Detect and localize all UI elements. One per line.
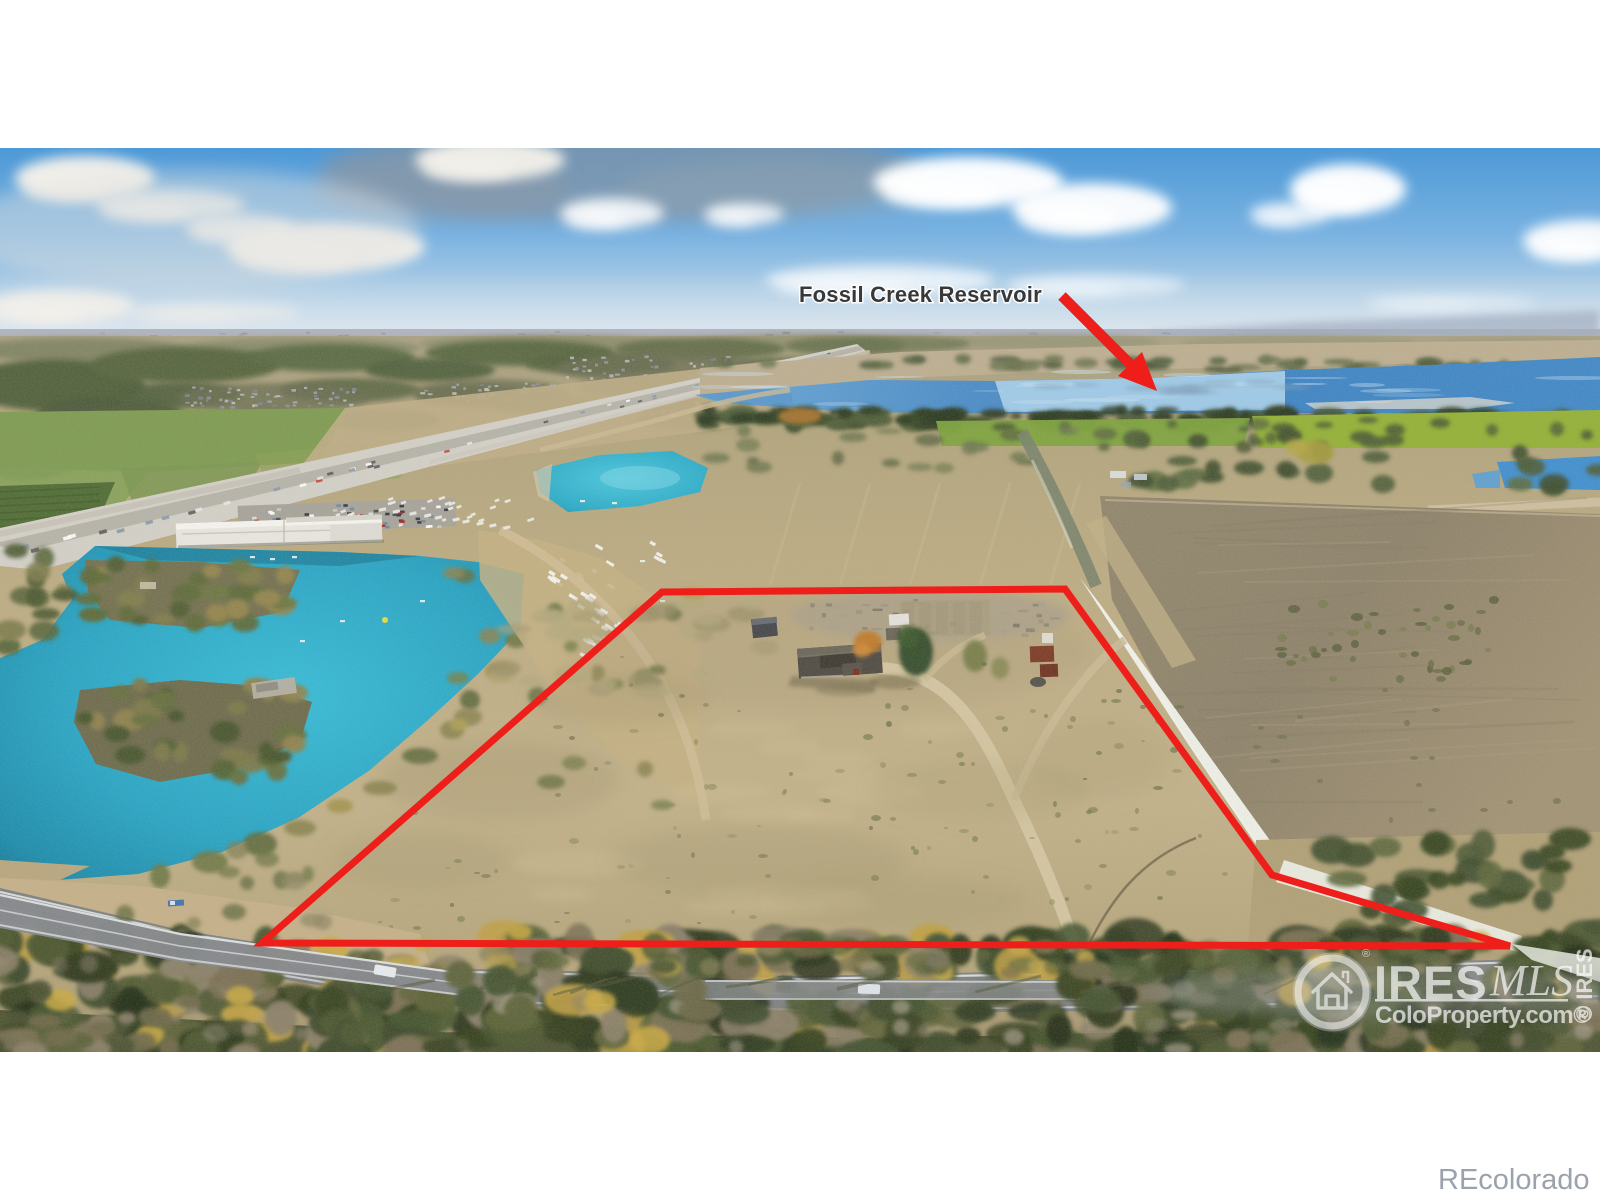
svg-text:© IRES: © IRES: [1572, 948, 1597, 1022]
svg-text:®: ®: [1362, 948, 1370, 960]
svg-text:Fossil Creek Reservoir: Fossil Creek Reservoir: [799, 282, 1042, 307]
svg-text:ColoProperty.com®: ColoProperty.com®: [1375, 1002, 1591, 1029]
svg-text:MLS: MLS: [1489, 956, 1573, 1005]
